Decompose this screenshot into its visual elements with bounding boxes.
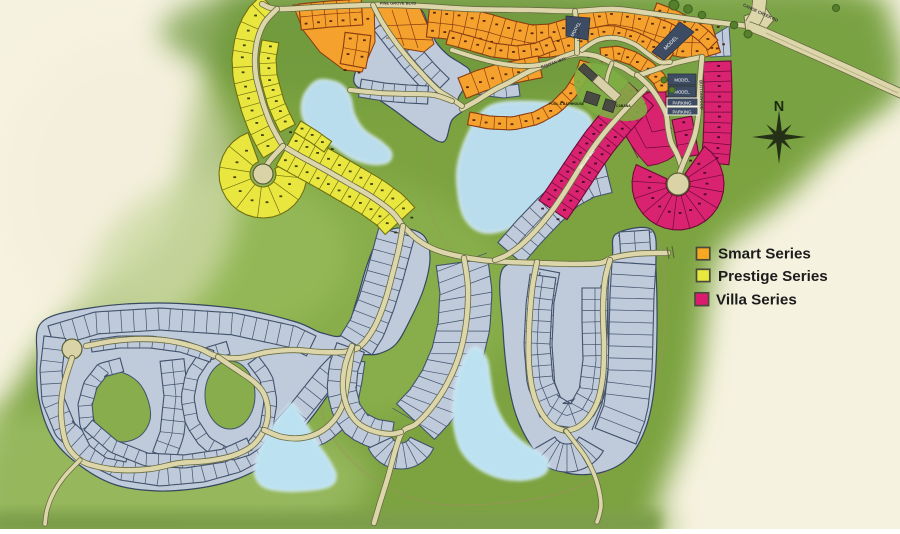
svg-text:MODEL: MODEL <box>674 90 690 95</box>
svg-text:CABANA: CABANA <box>616 104 631 108</box>
svg-text:OAK ST: OAK ST <box>576 26 581 42</box>
svg-text:PARKING: PARKING <box>672 100 692 105</box>
svg-text:PARKING: PARKING <box>672 109 692 114</box>
svg-text:BUTTONWOOD: BUTTONWOOD <box>698 80 704 110</box>
svg-text:Villa Series: Villa Series <box>716 292 797 309</box>
svg-text:PINE GROVE BLVD: PINE GROVE BLVD <box>380 1 417 6</box>
svg-text:Smart Series: Smart Series <box>718 246 811 263</box>
svg-text:POOL & BATHHOUSE: POOL & BATHHOUSE <box>549 102 585 106</box>
svg-text:N: N <box>774 99 784 115</box>
svg-text:Prestige Series: Prestige Series <box>718 268 828 285</box>
svg-text:MODEL: MODEL <box>674 78 690 83</box>
